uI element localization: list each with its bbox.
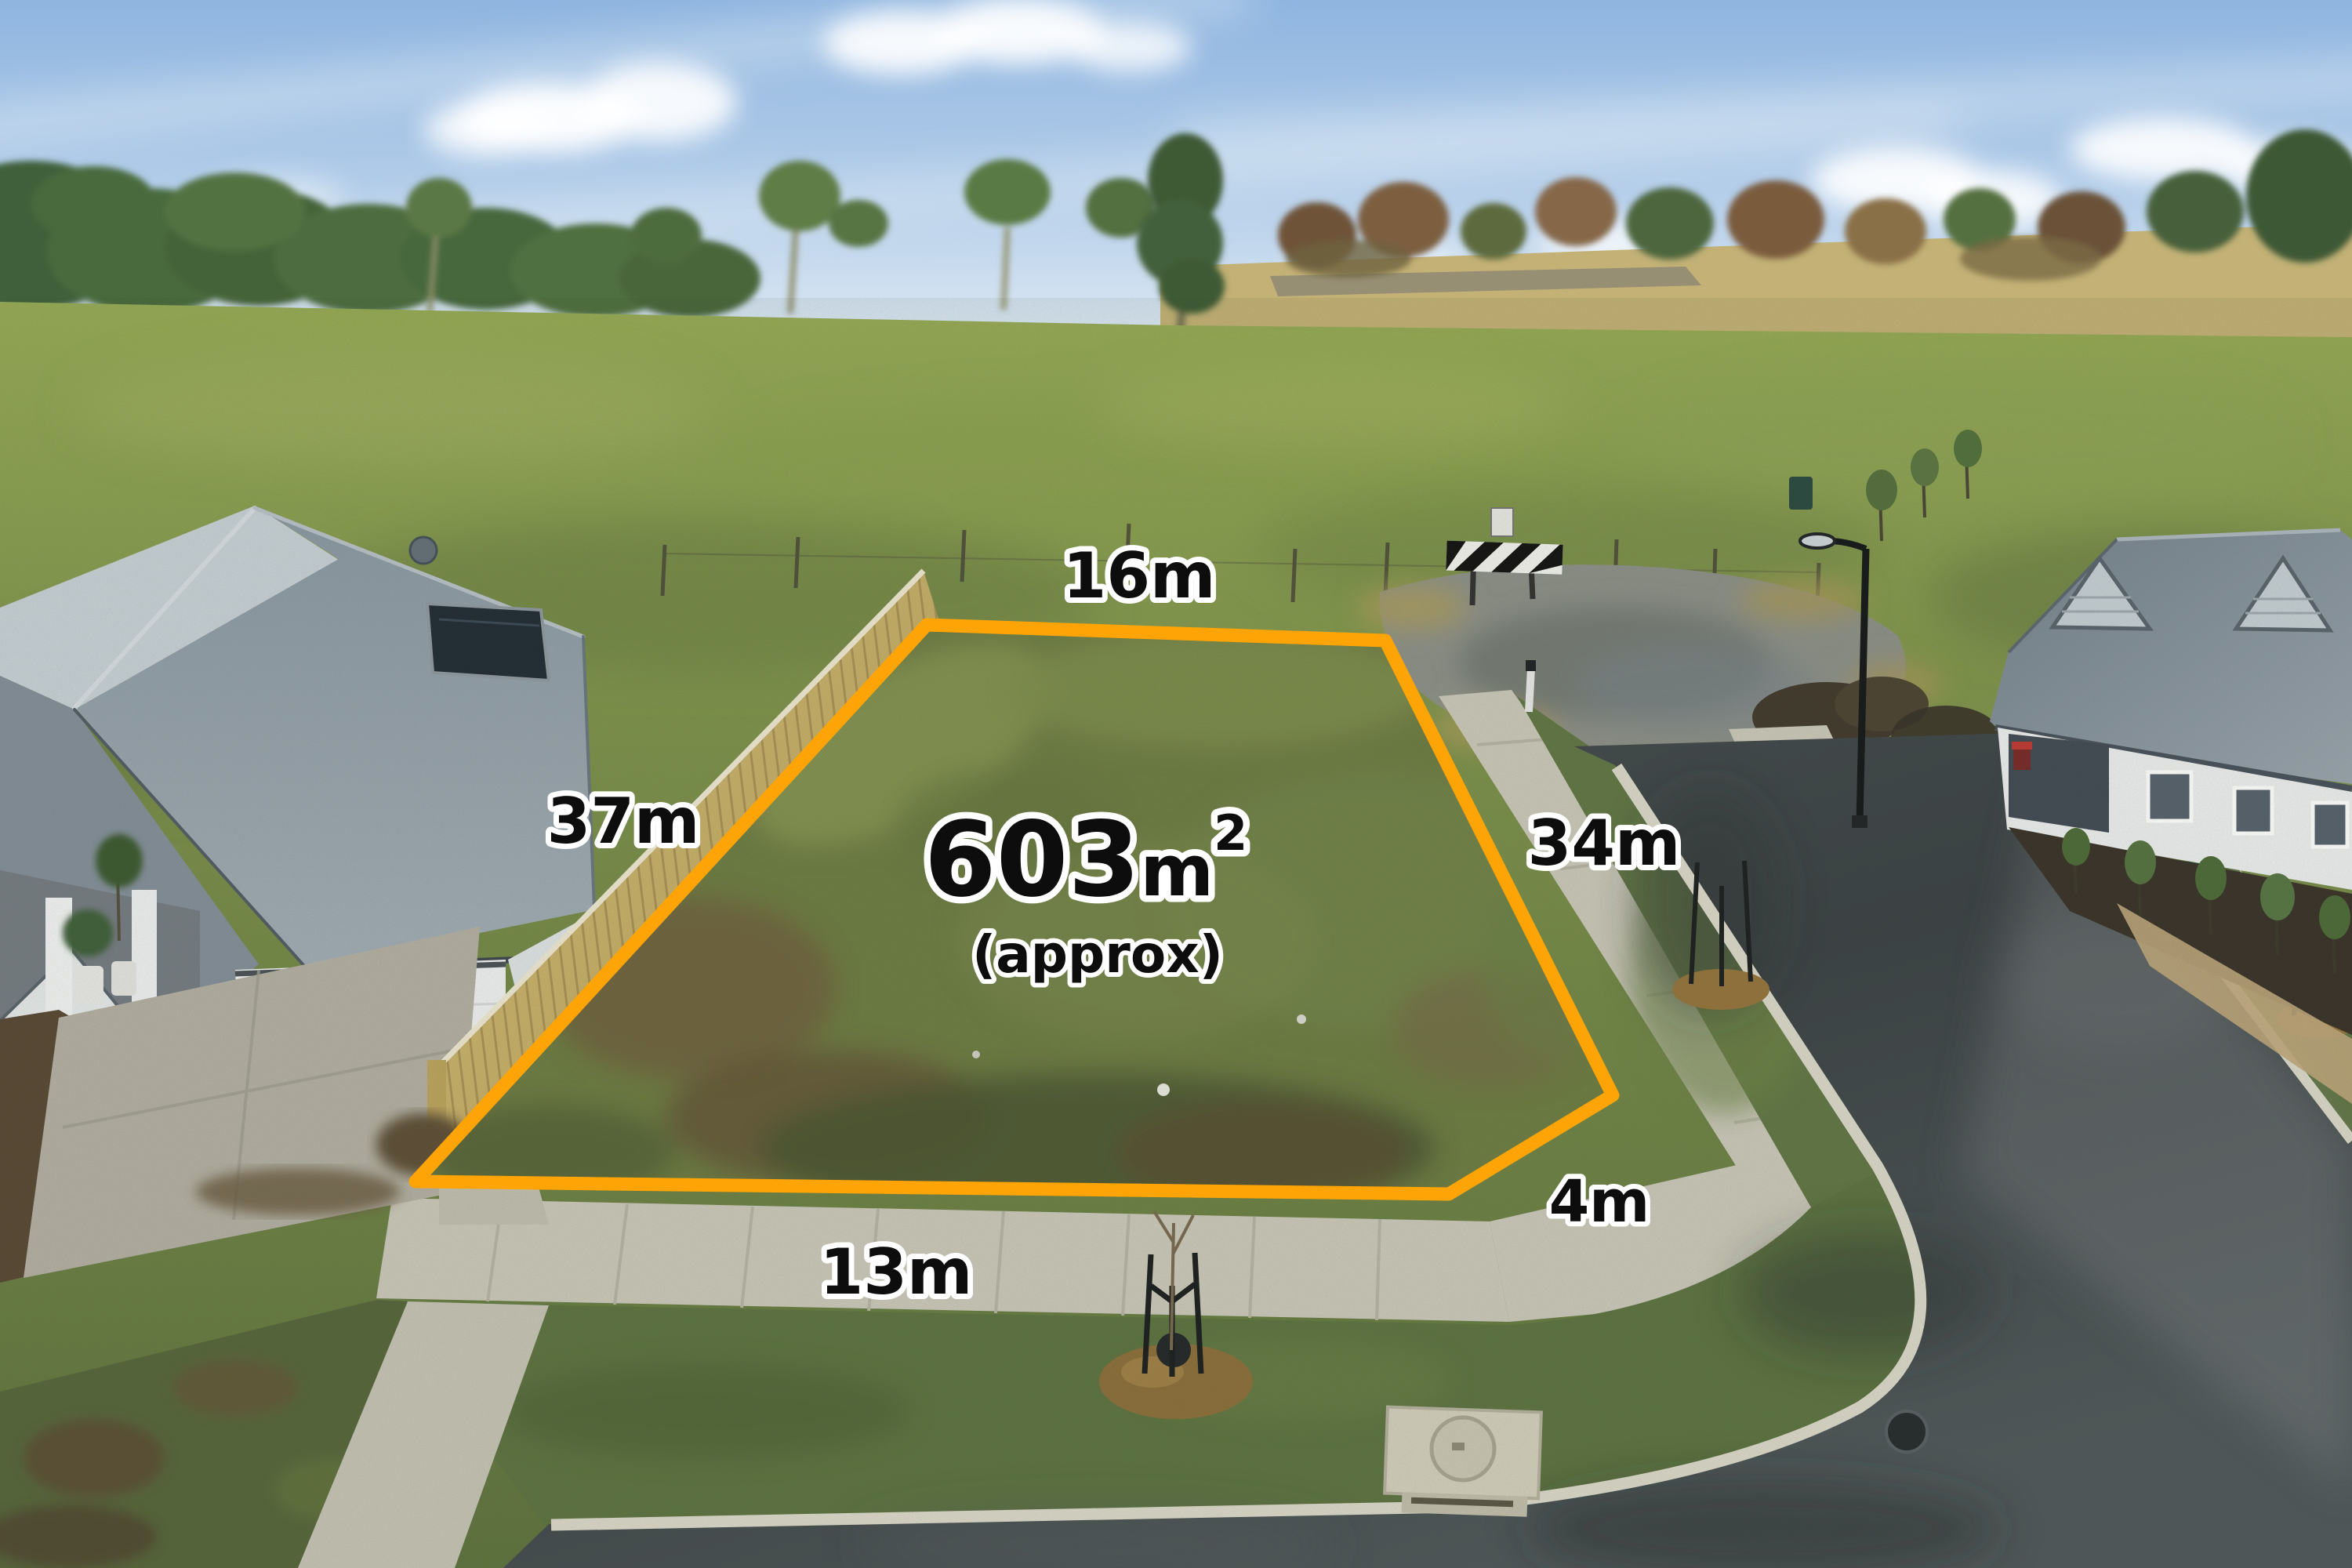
dimension-label-left: 37m xyxy=(547,785,700,858)
aerial-photo: 16m 37m 34m 13m 4m 603m2 (approx) xyxy=(0,0,2352,1568)
dimension-label-right: 34m xyxy=(1528,807,1681,880)
area-qualifier-label: (approx) xyxy=(972,924,1223,985)
dimension-label-corner: 4m xyxy=(1549,1168,1650,1236)
dimension-label-top: 16m xyxy=(1063,539,1216,612)
dimension-label-bottom: 13m xyxy=(820,1236,973,1308)
